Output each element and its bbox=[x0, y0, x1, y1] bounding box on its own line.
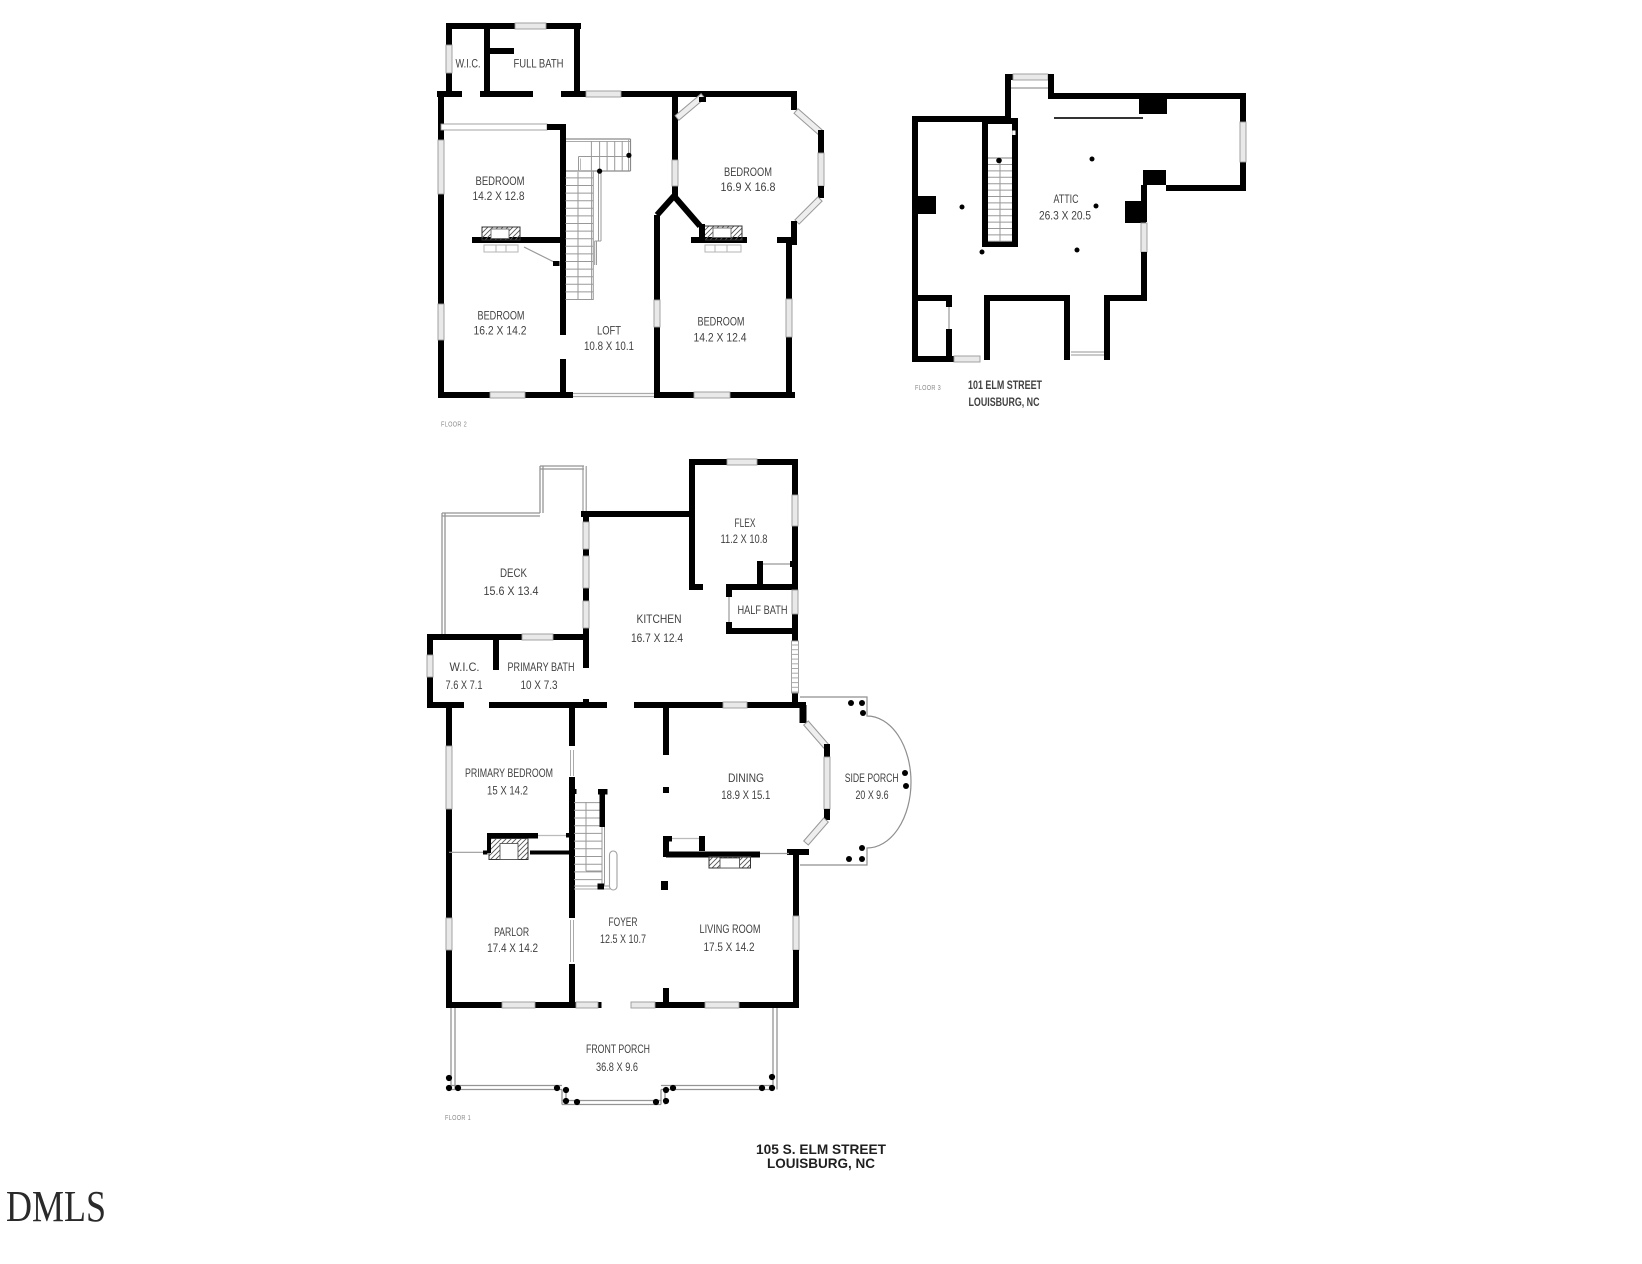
svg-text:10.8 X 10.1: 10.8 X 10.1 bbox=[584, 339, 634, 353]
svg-text:LIVING ROOM: LIVING ROOM bbox=[700, 922, 761, 936]
svg-text:FRONT PORCH: FRONT PORCH bbox=[586, 1042, 650, 1056]
svg-text:17.5 X 14.2: 17.5 X 14.2 bbox=[704, 940, 755, 954]
svg-text:W.I.C.: W.I.C. bbox=[456, 57, 481, 71]
svg-text:PRIMARY BATH: PRIMARY BATH bbox=[508, 660, 575, 674]
svg-text:ATTIC: ATTIC bbox=[1054, 192, 1079, 206]
svg-text:DECK: DECK bbox=[500, 566, 527, 580]
svg-text:W.I.C.: W.I.C. bbox=[450, 660, 480, 674]
svg-text:16.7 X 12.4: 16.7 X 12.4 bbox=[631, 631, 683, 645]
svg-text:BEDROOM: BEDROOM bbox=[698, 315, 745, 329]
svg-text:DMLS: DMLS bbox=[6, 1182, 106, 1231]
svg-text:26.3 X 20.5: 26.3 X 20.5 bbox=[1039, 209, 1091, 223]
svg-text:FLOOR 2: FLOOR 2 bbox=[441, 420, 467, 429]
svg-text:HALF BATH: HALF BATH bbox=[738, 603, 788, 617]
svg-text:BEDROOM: BEDROOM bbox=[476, 174, 525, 188]
svg-text:15.6 X 13.4: 15.6 X 13.4 bbox=[484, 584, 539, 598]
svg-text:15 X 14.2: 15 X 14.2 bbox=[487, 784, 528, 798]
svg-text:14.2 X 12.8: 14.2 X 12.8 bbox=[473, 189, 525, 203]
svg-text:KITCHEN: KITCHEN bbox=[637, 612, 682, 626]
svg-text:FLOOR 3: FLOOR 3 bbox=[915, 383, 941, 392]
svg-text:36.8 X 9.6: 36.8 X 9.6 bbox=[596, 1060, 638, 1074]
svg-text:17.4 X 14.2: 17.4 X 14.2 bbox=[487, 941, 538, 955]
svg-text:16.9 X 16.8: 16.9 X 16.8 bbox=[721, 180, 776, 194]
svg-text:11.2 X 10.8: 11.2 X 10.8 bbox=[721, 532, 768, 546]
svg-text:BEDROOM: BEDROOM bbox=[478, 309, 525, 323]
svg-text:SIDE PORCH: SIDE PORCH bbox=[845, 771, 899, 785]
svg-text:FOYER: FOYER bbox=[609, 915, 638, 929]
svg-text:FLOOR 1: FLOOR 1 bbox=[445, 1113, 471, 1122]
svg-text:FULL BATH: FULL BATH bbox=[514, 57, 564, 71]
svg-text:LOUISBURG, NC: LOUISBURG, NC bbox=[969, 395, 1040, 409]
svg-text:20 X 9.6: 20 X 9.6 bbox=[856, 788, 889, 802]
svg-text:LOUISBURG, NC: LOUISBURG, NC bbox=[767, 1155, 875, 1171]
svg-text:PRIMARY BEDROOM: PRIMARY BEDROOM bbox=[465, 766, 553, 780]
svg-text:12.5 X 10.7: 12.5 X 10.7 bbox=[600, 932, 646, 946]
svg-text:FLEX: FLEX bbox=[735, 516, 756, 530]
svg-text:PARLOR: PARLOR bbox=[494, 925, 529, 939]
svg-text:BEDROOM: BEDROOM bbox=[724, 165, 772, 179]
svg-text:LOFT: LOFT bbox=[597, 324, 622, 338]
svg-text:101 ELM STREET: 101 ELM STREET bbox=[968, 378, 1042, 392]
svg-text:7.6 X 7.1: 7.6 X 7.1 bbox=[446, 678, 483, 692]
svg-text:14.2 X 12.4: 14.2 X 12.4 bbox=[694, 331, 747, 345]
svg-text:DINING: DINING bbox=[728, 771, 764, 785]
svg-text:18.9 X 15.1: 18.9 X 15.1 bbox=[721, 788, 770, 802]
svg-text:16.2 X 14.2: 16.2 X 14.2 bbox=[474, 324, 527, 338]
svg-text:10 X 7.3: 10 X 7.3 bbox=[521, 678, 558, 692]
